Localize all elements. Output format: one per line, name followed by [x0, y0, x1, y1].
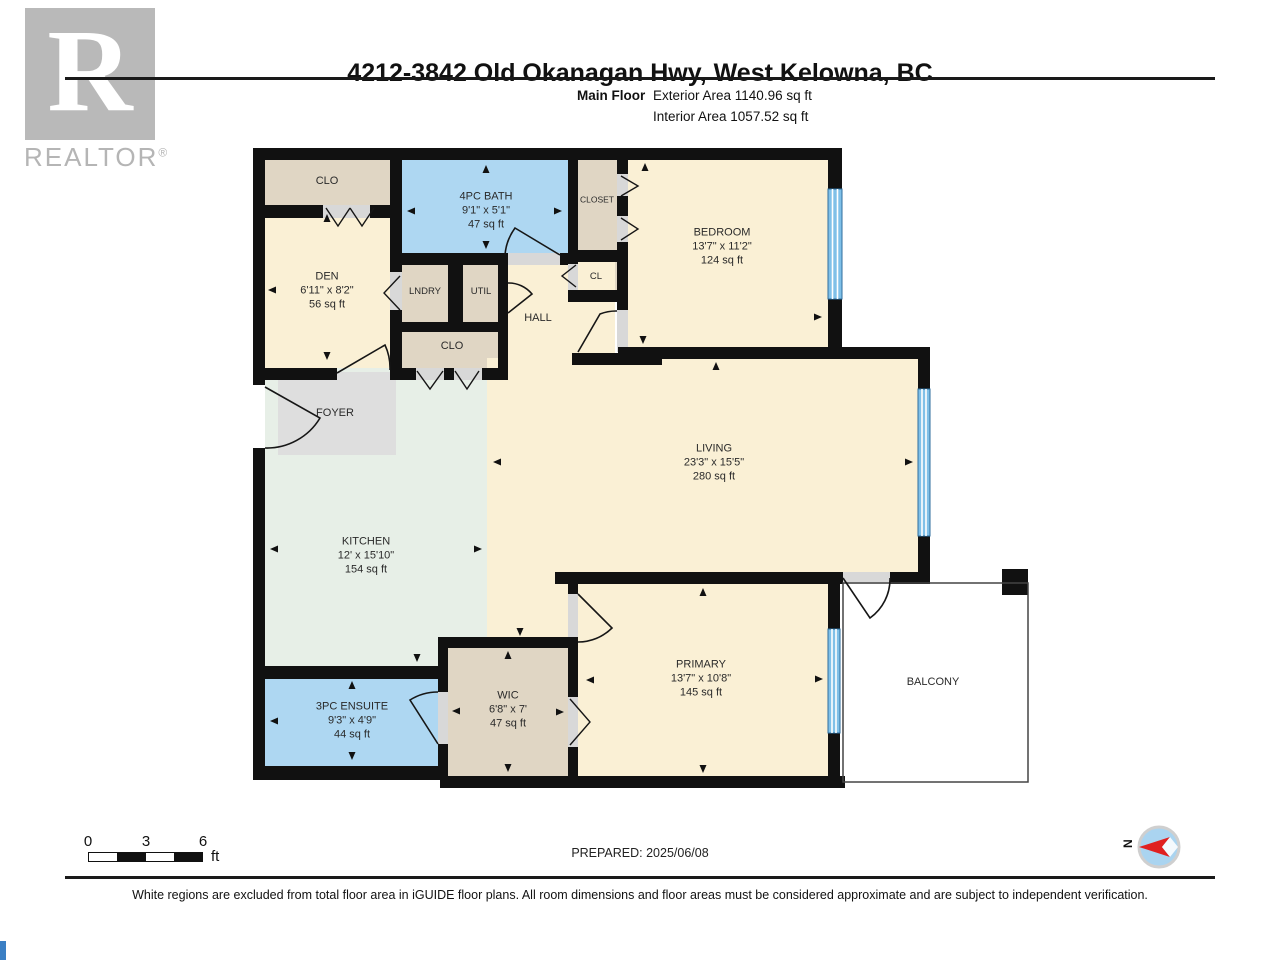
bedroom-window	[828, 189, 842, 299]
room-corridor	[487, 572, 568, 650]
registered-trademark: ®	[158, 145, 169, 159]
prepared-date: PREPARED: 2025/06/08	[0, 846, 1280, 860]
living-window	[918, 389, 930, 536]
page-title: 4212-3842 Old Okanagan Hwy, West Kelowna…	[0, 59, 1280, 88]
room-label-wic: WIC6'8" x 7'47 sq ft	[489, 689, 527, 730]
room-label-primary: PRIMARY13'7" x 10'8"145 sq ft	[671, 658, 731, 699]
room-label-bath: 4PC BATH9'1" x 5'1"47 sq ft	[460, 190, 513, 231]
room-label-ensuite: 3PC ENSUITE9'3" x 4'9"44 sq ft	[316, 700, 388, 741]
entry-opening	[253, 385, 265, 448]
room-label-den: DEN6'11" x 8'2"56 sq ft	[300, 270, 353, 311]
room-label-cl: CL	[590, 271, 602, 283]
room-label-foyer: FOYER	[316, 407, 354, 421]
primary-window	[828, 629, 840, 733]
room-label-util: UTIL	[471, 286, 492, 298]
room-label-balcony: BALCONY	[907, 676, 960, 690]
room-label-lndry: LNDRY	[409, 286, 441, 298]
realtor-wordmark: REALTOR®	[24, 142, 169, 173]
header-divider	[65, 77, 1215, 80]
balcony-pillar	[1002, 569, 1028, 595]
room-label-hall: HALL	[524, 312, 552, 326]
disclaimer-text: White regions are excluded from total fl…	[0, 888, 1280, 902]
interior-area: Interior Area 1057.52 sq ft	[653, 109, 808, 124]
room-label-clo1: CLO	[316, 175, 339, 189]
room-label-closet: CLOSET	[580, 195, 614, 206]
floor-label: Main Floor	[577, 88, 645, 103]
room-label-kitchen: KITCHEN12' x 15'10"154 sq ft	[338, 535, 394, 576]
footer-divider	[65, 876, 1215, 879]
exterior-area: Exterior Area 1140.96 sq ft	[653, 88, 812, 103]
room-label-bedroom: BEDROOM13'7" x 11'2"124 sq ft	[692, 226, 752, 267]
corner-artifact	[0, 941, 6, 960]
room-label-clo2: CLO	[441, 340, 464, 354]
floorplan-page: R REALTOR® 4212-3842 Old Okanagan Hwy, W…	[0, 0, 1280, 960]
room-label-living: LIVING23'3" x 15'5"280 sq ft	[684, 442, 744, 483]
